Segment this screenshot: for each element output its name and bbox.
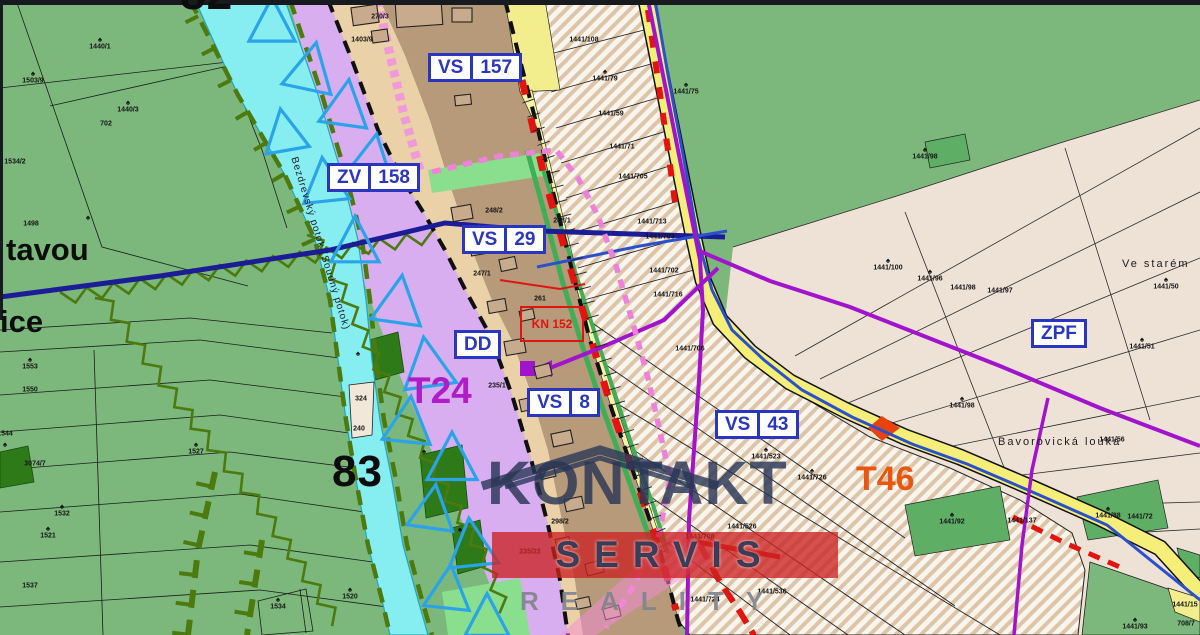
zone-code: ZV (330, 166, 368, 189)
zone-code: VS (718, 413, 757, 436)
watermark-title: KONTAKT (487, 453, 788, 514)
place-name-ice: ice (0, 306, 43, 337)
map-canvas[interactable]: 1440/11503/91440/37021534/21498155315501… (0, 0, 1200, 635)
zone-code: VS (431, 56, 470, 79)
place-name-ve-starem: Ve starém (1122, 259, 1190, 270)
zone-label-vs8: VS8 (527, 388, 600, 417)
building-footprint (487, 299, 507, 314)
place-name-louka: Bavorovická louka (998, 437, 1121, 448)
building-footprint (499, 256, 517, 271)
zone-label-zpf: ZPF (1031, 319, 1087, 348)
zone-number: 8 (569, 391, 597, 414)
zone-code: VS (530, 391, 569, 414)
zone-number: 158 (368, 166, 417, 189)
watermark-band-text: SERVIS (555, 534, 774, 576)
building-footprint (451, 204, 473, 221)
zone-number: 29 (504, 228, 542, 251)
purple-node-square (520, 361, 535, 376)
biocorridor-number-83: 83 (332, 450, 383, 494)
zone-label-vs29: VS29 (462, 225, 546, 254)
place-name-tavou: tavou (6, 234, 89, 265)
zone-code: DD (457, 333, 498, 356)
zone-number: 43 (757, 413, 795, 436)
kn-parcel-label: KN 152 (532, 317, 573, 331)
label-t24: T24 (408, 372, 472, 409)
zone-label-zv158: ZV158 (327, 163, 420, 192)
kn-parcel-highlight: KN 152 (520, 306, 584, 342)
zone-label-dd: DD (454, 330, 501, 359)
zone-code: VS (465, 228, 504, 251)
zone-code: ZPF (1034, 322, 1084, 345)
label-t46: T46 (856, 462, 915, 496)
zone-number: 157 (470, 56, 519, 79)
building-footprint (371, 29, 389, 43)
watermark-band: SERVIS (492, 532, 838, 578)
zone-label-vs43: VS43 (715, 410, 799, 439)
building-footprint (351, 4, 379, 25)
building-footprint (452, 8, 472, 22)
building-footprint (455, 94, 472, 106)
left-edge-bar (0, 0, 3, 320)
watermark-subtitle: REALITY (520, 588, 785, 614)
biocorridor-number-82: 82 (180, 0, 233, 16)
zone-label-vs157: VS157 (428, 53, 522, 82)
